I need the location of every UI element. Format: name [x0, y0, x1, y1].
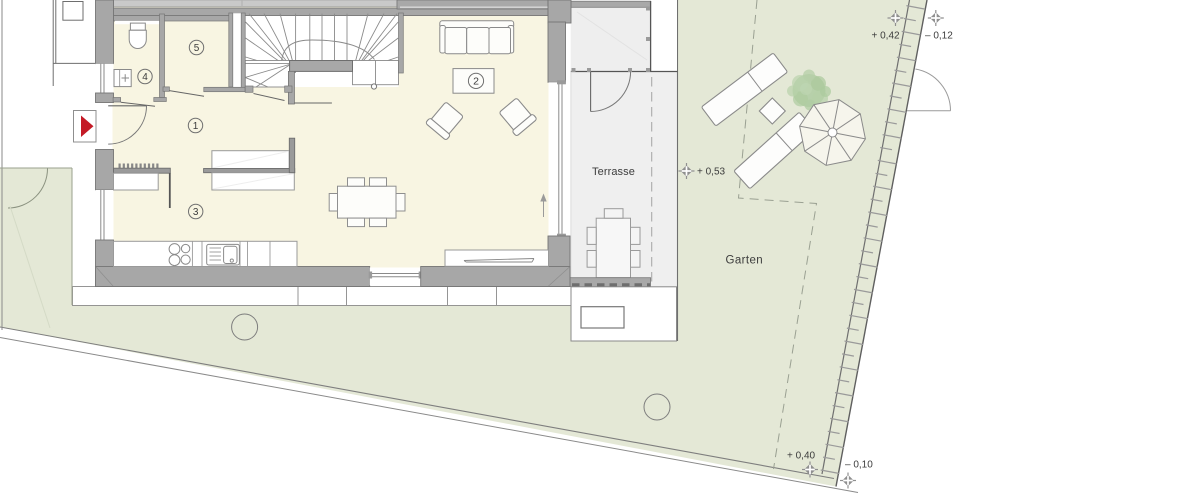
svg-text:3: 3: [193, 207, 199, 218]
svg-text:– 0,12: – 0,12: [925, 31, 953, 42]
svg-text:+ 0,40: + 0,40: [787, 451, 816, 462]
svg-text:1: 1: [193, 121, 199, 132]
svg-text:– 0,10: – 0,10: [845, 460, 873, 471]
svg-text:+ 0,53: + 0,53: [697, 167, 726, 178]
svg-text:Garten: Garten: [726, 255, 764, 267]
svg-text:+ 0,42: + 0,42: [872, 31, 901, 42]
svg-text:2: 2: [473, 76, 479, 88]
svg-text:5: 5: [194, 43, 200, 54]
svg-text:Terrasse: Terrasse: [592, 166, 635, 178]
svg-text:4: 4: [142, 72, 148, 83]
